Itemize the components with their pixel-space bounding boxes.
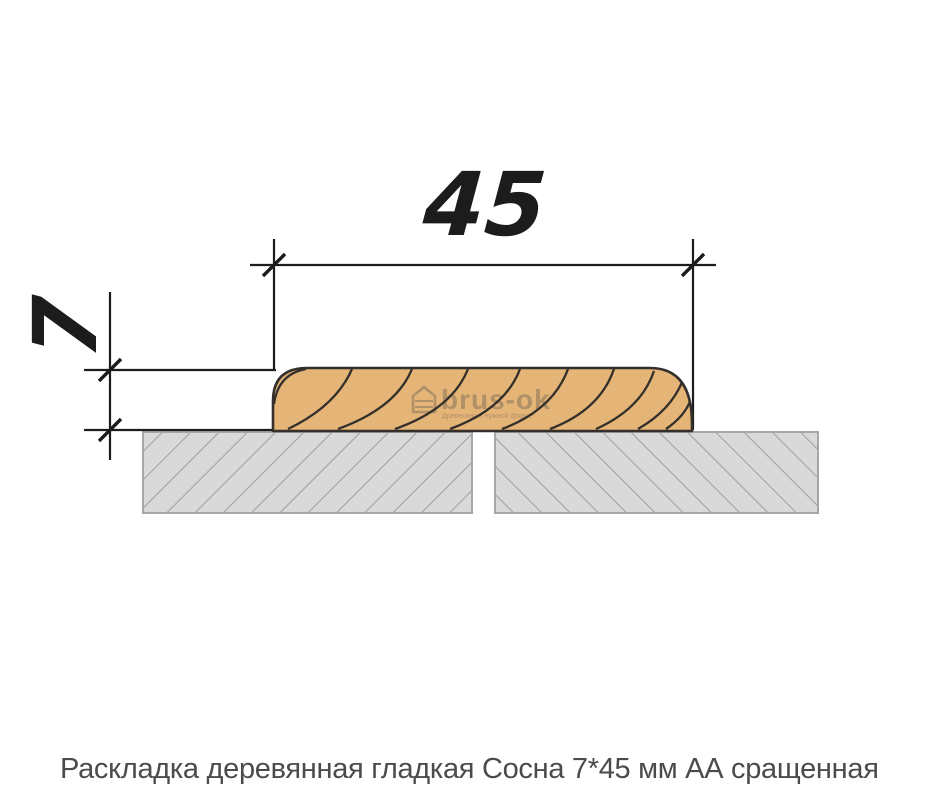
substrate-panel-left [143, 432, 472, 513]
diagram-drawing: brus-ok Древесина в нужной форме [0, 0, 931, 800]
product-dimension-diagram: brus-ok Древесина в нужной форме 45 7 Ра… [0, 0, 931, 800]
product-caption: Раскладка деревянная гладкая Сосна 7*45 … [60, 753, 879, 785]
dimension-height-value: 7 [22, 293, 110, 360]
dimension-width-value: 45 [421, 161, 550, 249]
substrate-panel-right [495, 432, 818, 513]
watermark-tagline: Древесина в нужной форме [442, 412, 533, 420]
